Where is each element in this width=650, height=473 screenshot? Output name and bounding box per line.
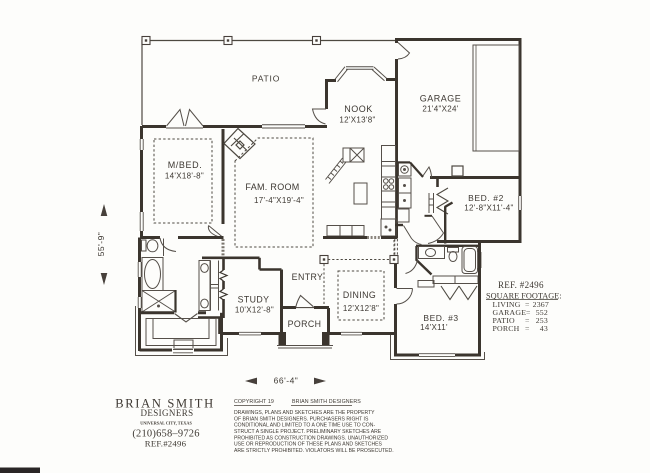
svg-text:GARAGE: GARAGE: [420, 94, 462, 104]
svg-text:14'X11': 14'X11': [420, 323, 448, 332]
svg-text:UNIVERSAL CITY, TEXAS: UNIVERSAL CITY, TEXAS: [140, 421, 192, 426]
svg-text:12'X12'8": 12'X12'8": [343, 304, 379, 313]
svg-text:17'-4"X19'-4": 17'-4"X19'-4": [254, 196, 304, 205]
svg-text:STUDY: STUDY: [238, 295, 270, 305]
svg-text:USE OR REPRODUCTION OF THESE P: USE OR REPRODUCTION OF THESE PLANS AND S…: [234, 442, 383, 448]
svg-text:BRIAN SMITH DESIGNERS: BRIAN SMITH DESIGNERS: [292, 399, 361, 405]
svg-text:STRUCT A SINGLE PROJECT. PREL: STRUCT A SINGLE PROJECT. PRELIMINARY SKE…: [234, 429, 382, 435]
svg-text:DINING: DINING: [343, 290, 376, 300]
svg-text:PORCH: PORCH: [493, 324, 520, 333]
svg-text:DESIGNERS: DESIGNERS: [140, 408, 193, 418]
svg-text:12'-8"X11'-4": 12'-8"X11'-4": [464, 204, 513, 213]
svg-text:ENTRY: ENTRY: [292, 272, 324, 282]
svg-text:10'X12'-8": 10'X12'-8": [235, 306, 274, 315]
svg-text:BED. #3: BED. #3: [423, 313, 458, 323]
svg-text:REF.#2496: REF.#2496: [145, 439, 187, 449]
svg-text:21'4"X24': 21'4"X24': [422, 105, 458, 114]
svg-text:43: 43: [540, 324, 548, 333]
svg-text:OF BRIAN SMITH DESIGNERS. PUR: OF BRIAN SMITH DESIGNERS. PURCHASERS RIG…: [234, 416, 369, 422]
svg-text:12'X13'8": 12'X13'8": [339, 116, 375, 125]
svg-text:COPYRIGHT 19: COPYRIGHT 19: [234, 399, 274, 405]
svg-text:55'-9": 55'-9": [96, 232, 106, 257]
svg-text:FAM. ROOM: FAM. ROOM: [245, 182, 299, 192]
svg-text:DRAWINGS, PLANS AND SKETCHES A: DRAWINGS, PLANS AND SKETCHES ARE THE PRO…: [234, 410, 375, 416]
svg-text:PROHIBITED AS CONSTRUCTION DRA: PROHIBITED AS CONSTRUCTION DRAWINGS. UNA…: [234, 435, 388, 441]
svg-text:=: =: [525, 324, 530, 333]
svg-text:14'X18'-8": 14'X18'-8": [165, 172, 204, 181]
svg-text:ARE STRICTLY PROHIBITED. VIOL: ARE STRICTLY PROHIBITED. VIOLATORS WILL …: [234, 448, 394, 454]
svg-text:M/BED.: M/BED.: [168, 160, 203, 170]
svg-text:NOOK: NOOK: [344, 104, 373, 114]
svg-text:CONDITIONAL AND LIMITED TO A O: CONDITIONAL AND LIMITED TO A ONE TIME US…: [234, 423, 375, 429]
svg-text:PATIO: PATIO: [252, 74, 280, 84]
svg-text:PORCH: PORCH: [288, 319, 322, 329]
svg-text:BED. #2: BED. #2: [468, 193, 504, 203]
svg-text:REF. #2496: REF. #2496: [498, 280, 544, 290]
svg-text:66'-4": 66'-4": [274, 376, 299, 386]
